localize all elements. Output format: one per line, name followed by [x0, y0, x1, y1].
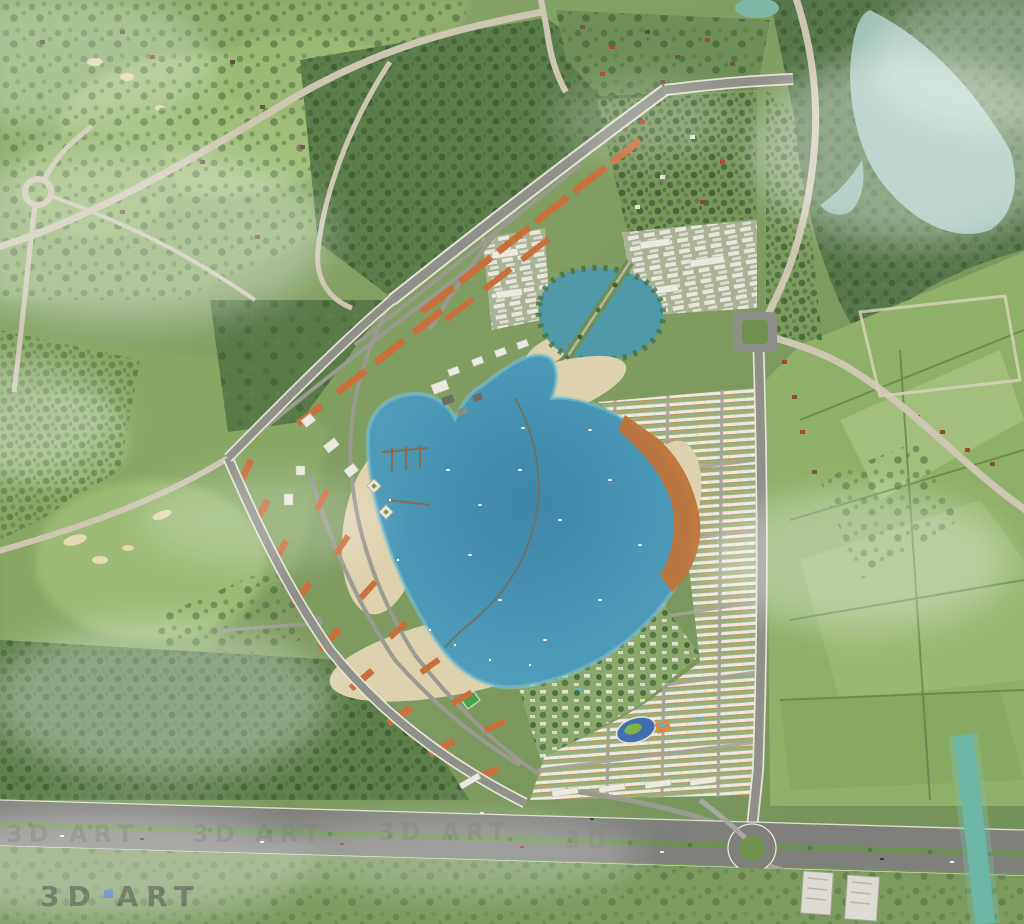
watermark-tile: 3D ART — [564, 826, 697, 854]
render-canvas: 3D ART 3D ART 3D ART 3D ART 3D ART — [0, 0, 1024, 924]
watermark-logo: 3D ART — [40, 880, 202, 913]
junction-square — [733, 312, 777, 352]
watermark-tile: 3D ART — [378, 818, 511, 846]
watermark-tile: 3D ART — [192, 820, 325, 848]
aerial-masterplan-render: 3D ART 3D ART 3D ART 3D ART 3D ART — [0, 0, 1024, 924]
watermark-tile: 3D ART — [6, 820, 139, 848]
